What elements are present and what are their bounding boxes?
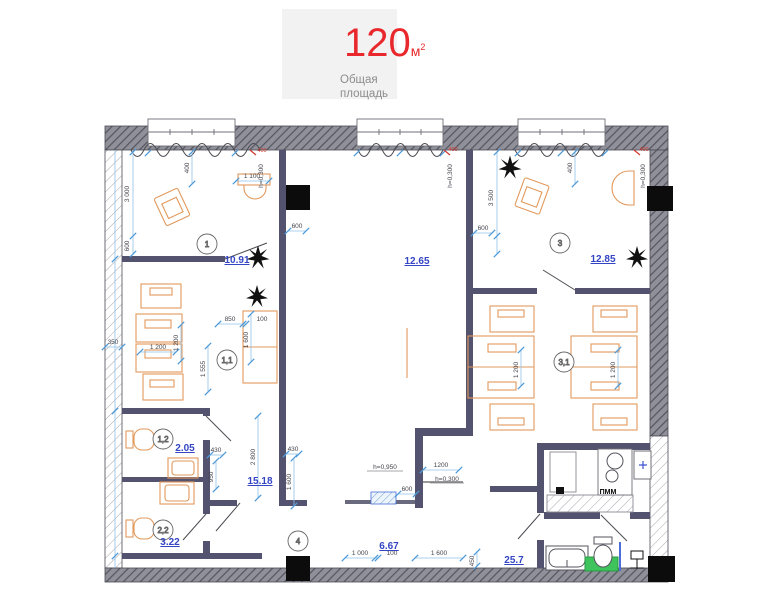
dim-label-red: 400 [257,148,266,154]
columns [286,185,675,582]
svg-text:1,2: 1,2 [157,435,169,444]
plant-icon [626,246,648,268]
dim-label-red: 400 [448,147,457,153]
toilet [126,518,154,539]
svg-text:2,2: 2,2 [157,526,169,535]
bathroom [546,537,644,571]
dim-label: 1 200 [610,361,617,378]
plant-icon [247,246,270,269]
kitchen-counter [547,495,633,512]
svg-text:1,1: 1,1 [221,356,233,365]
desk-cluster-left [468,306,534,430]
dishwasher-label: ПММ [600,489,617,496]
room-badge-3: 3 [550,233,570,253]
room-badge-1-2: 1,2 [153,429,173,449]
kitchen: ПММ [547,449,651,512]
dim-label: h=0,300 [640,164,647,188]
column [648,556,675,582]
dim-label: 1 600 [286,473,293,490]
page: 120м2 Общая площадь [0,0,775,612]
stand [630,551,644,568]
dim-label: 1 555 [200,360,207,377]
desk-cluster-right [571,306,637,430]
dim-label: 400 [184,162,191,173]
plant-icon [499,156,522,179]
dim-label: 450 [469,555,476,566]
dim-label: 850 [225,316,236,323]
right-wall-lower [650,436,668,568]
svg-text:3,1: 3,1 [558,358,570,367]
chair [612,171,634,205]
radiator [371,492,396,504]
dim-label: 600 [292,223,303,230]
dim-label: 430 [211,447,222,454]
window-2 [357,119,443,146]
dim-label: 350 [108,339,119,346]
dim-label: 400 [567,162,574,173]
svg-text:1: 1 [205,240,210,249]
dim-label: 2 800 [250,448,257,465]
dim-label: 100 [257,316,268,323]
dim-label: h=0,300 [447,164,454,188]
dim-label: 1 600 [243,331,250,348]
dim-label: 1 200 [173,334,180,351]
room-area: 10.91 [224,255,249,266]
room-badge-3-1: 3,1 [554,352,574,372]
dim-label: 430 [288,446,299,453]
toilet-bowl [594,545,612,567]
armchair [515,177,550,214]
dim-label: 1200 [434,462,449,469]
left-wall [105,150,122,568]
dim-label: 600 [124,240,131,251]
dim-label: 1 000 [352,550,369,557]
room-area: 12.85 [590,254,615,265]
dim-label: 1 200 [513,361,520,378]
dim-label: 600 [478,225,489,232]
dim-label: 950 [208,471,215,482]
armchair [154,188,190,226]
room-area: 12.65 [404,256,429,267]
window-1 [148,119,235,146]
room-badge-1-1: 1,1 [217,350,237,370]
red-marks [250,150,640,155]
room-area: 2.05 [175,443,195,454]
room-area: 6.67 [379,541,399,552]
dim-label-red: 400 [639,147,648,153]
dim-label: 3 500 [488,189,495,206]
windows [148,119,605,146]
dim-label: h=0,300 [258,164,265,188]
dim-label: 1 600 [431,550,448,557]
sink [172,461,194,475]
svg-text:3: 3 [558,239,563,248]
dim-label: 3 000 [124,185,131,202]
dim-label: 1 200 [150,344,167,351]
dim-label: 600 [402,486,413,493]
room-area: 25.7 [504,555,524,566]
column [286,185,310,210]
room-area: 3.22 [160,537,180,548]
room-badge-4: 4 [288,531,308,551]
dim-label: h=0,950 [373,464,397,471]
floor-plan: ПММ [0,0,775,612]
dim-label: h=0,300 [435,476,459,483]
column [286,556,310,581]
room-area: 15.18 [247,476,272,487]
room-badge-1: 1 [197,234,217,254]
window-3 [518,119,605,146]
column [647,186,673,211]
area-labels: 10.91 12.65 12.85 2.05 3.22 15.18 6.67 2… [160,254,616,566]
toilet-tank [594,537,612,544]
toilet [126,429,154,450]
faucet-icon [556,487,564,494]
svg-text:4: 4 [296,537,301,546]
sink [165,485,189,501]
plant-icon [246,285,268,307]
cupboard [550,452,576,492]
